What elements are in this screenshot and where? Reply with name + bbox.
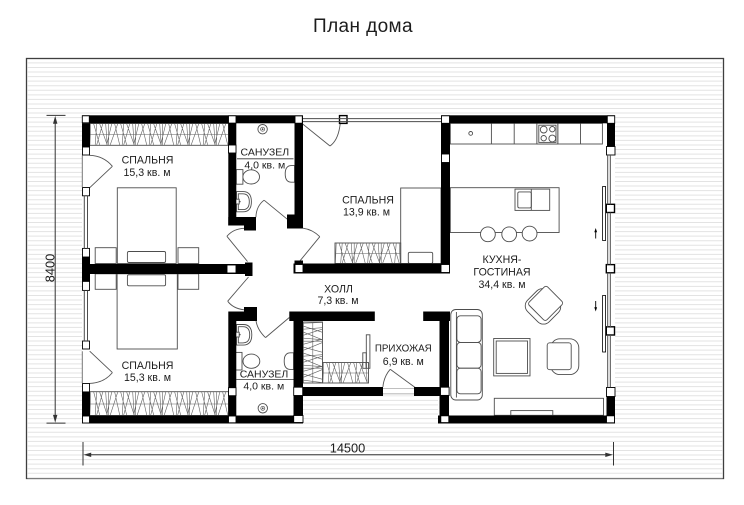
svg-text:15,3 кв. м: 15,3 кв. м (124, 372, 171, 384)
svg-text:8400: 8400 (43, 254, 58, 282)
svg-text:СПАЛЬНЯ: СПАЛЬНЯ (342, 194, 394, 206)
svg-text:4,0 кв. м: 4,0 кв. м (243, 380, 284, 392)
svg-text:СПАЛЬНЯ: СПАЛЬНЯ (122, 360, 174, 372)
svg-text:СПАЛЬНЯ: СПАЛЬНЯ (122, 155, 174, 167)
svg-text:ПРИХОЖАЯ: ПРИХОЖАЯ (375, 344, 432, 355)
svg-text:4,0 кв. м: 4,0 кв. м (244, 159, 285, 171)
svg-text:САНУЗЕЛ: САНУЗЕЛ (240, 147, 289, 159)
svg-text:6,9 кв. м: 6,9 кв. м (383, 356, 424, 368)
svg-text:КУХНЯ-: КУХНЯ- (483, 254, 522, 266)
svg-text:13,9 кв. м: 13,9 кв. м (343, 207, 390, 219)
svg-text:14500: 14500 (330, 441, 366, 456)
svg-text:План дома: План дома (313, 16, 413, 37)
svg-text:ГОСТИНАЯ: ГОСТИНАЯ (473, 266, 530, 278)
svg-text:34,4 кв. м: 34,4 кв. м (479, 279, 526, 291)
svg-text:15,3 кв. м: 15,3 кв. м (124, 167, 171, 179)
svg-text:ХОЛЛ: ХОЛЛ (324, 283, 353, 295)
svg-text:САНУЗЕЛ: САНУЗЕЛ (240, 368, 289, 380)
svg-text:7,3 кв. м: 7,3 кв. м (317, 295, 358, 307)
